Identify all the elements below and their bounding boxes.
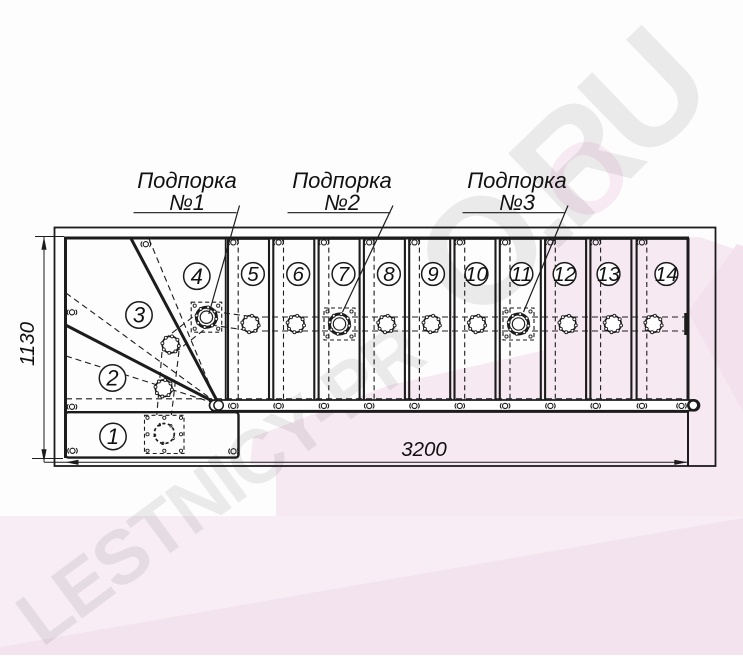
svg-text:№3: №3 [499, 190, 536, 215]
svg-text:3200: 3200 [401, 438, 447, 461]
svg-text:14: 14 [655, 263, 678, 286]
svg-text:7: 7 [338, 263, 351, 286]
svg-text:№1: №1 [169, 190, 205, 215]
svg-text:5: 5 [247, 263, 259, 286]
svg-text:13: 13 [597, 263, 620, 286]
svg-text:11: 11 [511, 263, 532, 286]
svg-text:6: 6 [292, 263, 304, 286]
svg-text:2: 2 [105, 366, 118, 391]
svg-text:№2: №2 [324, 190, 360, 215]
svg-text:1: 1 [107, 424, 119, 449]
svg-text:12: 12 [553, 263, 576, 286]
svg-text:9: 9 [427, 263, 438, 286]
svg-text:4: 4 [191, 264, 203, 289]
svg-text:3: 3 [133, 303, 146, 328]
svg-text:10: 10 [465, 263, 488, 286]
svg-text:8: 8 [383, 263, 395, 286]
svg-text:1130: 1130 [16, 321, 39, 366]
